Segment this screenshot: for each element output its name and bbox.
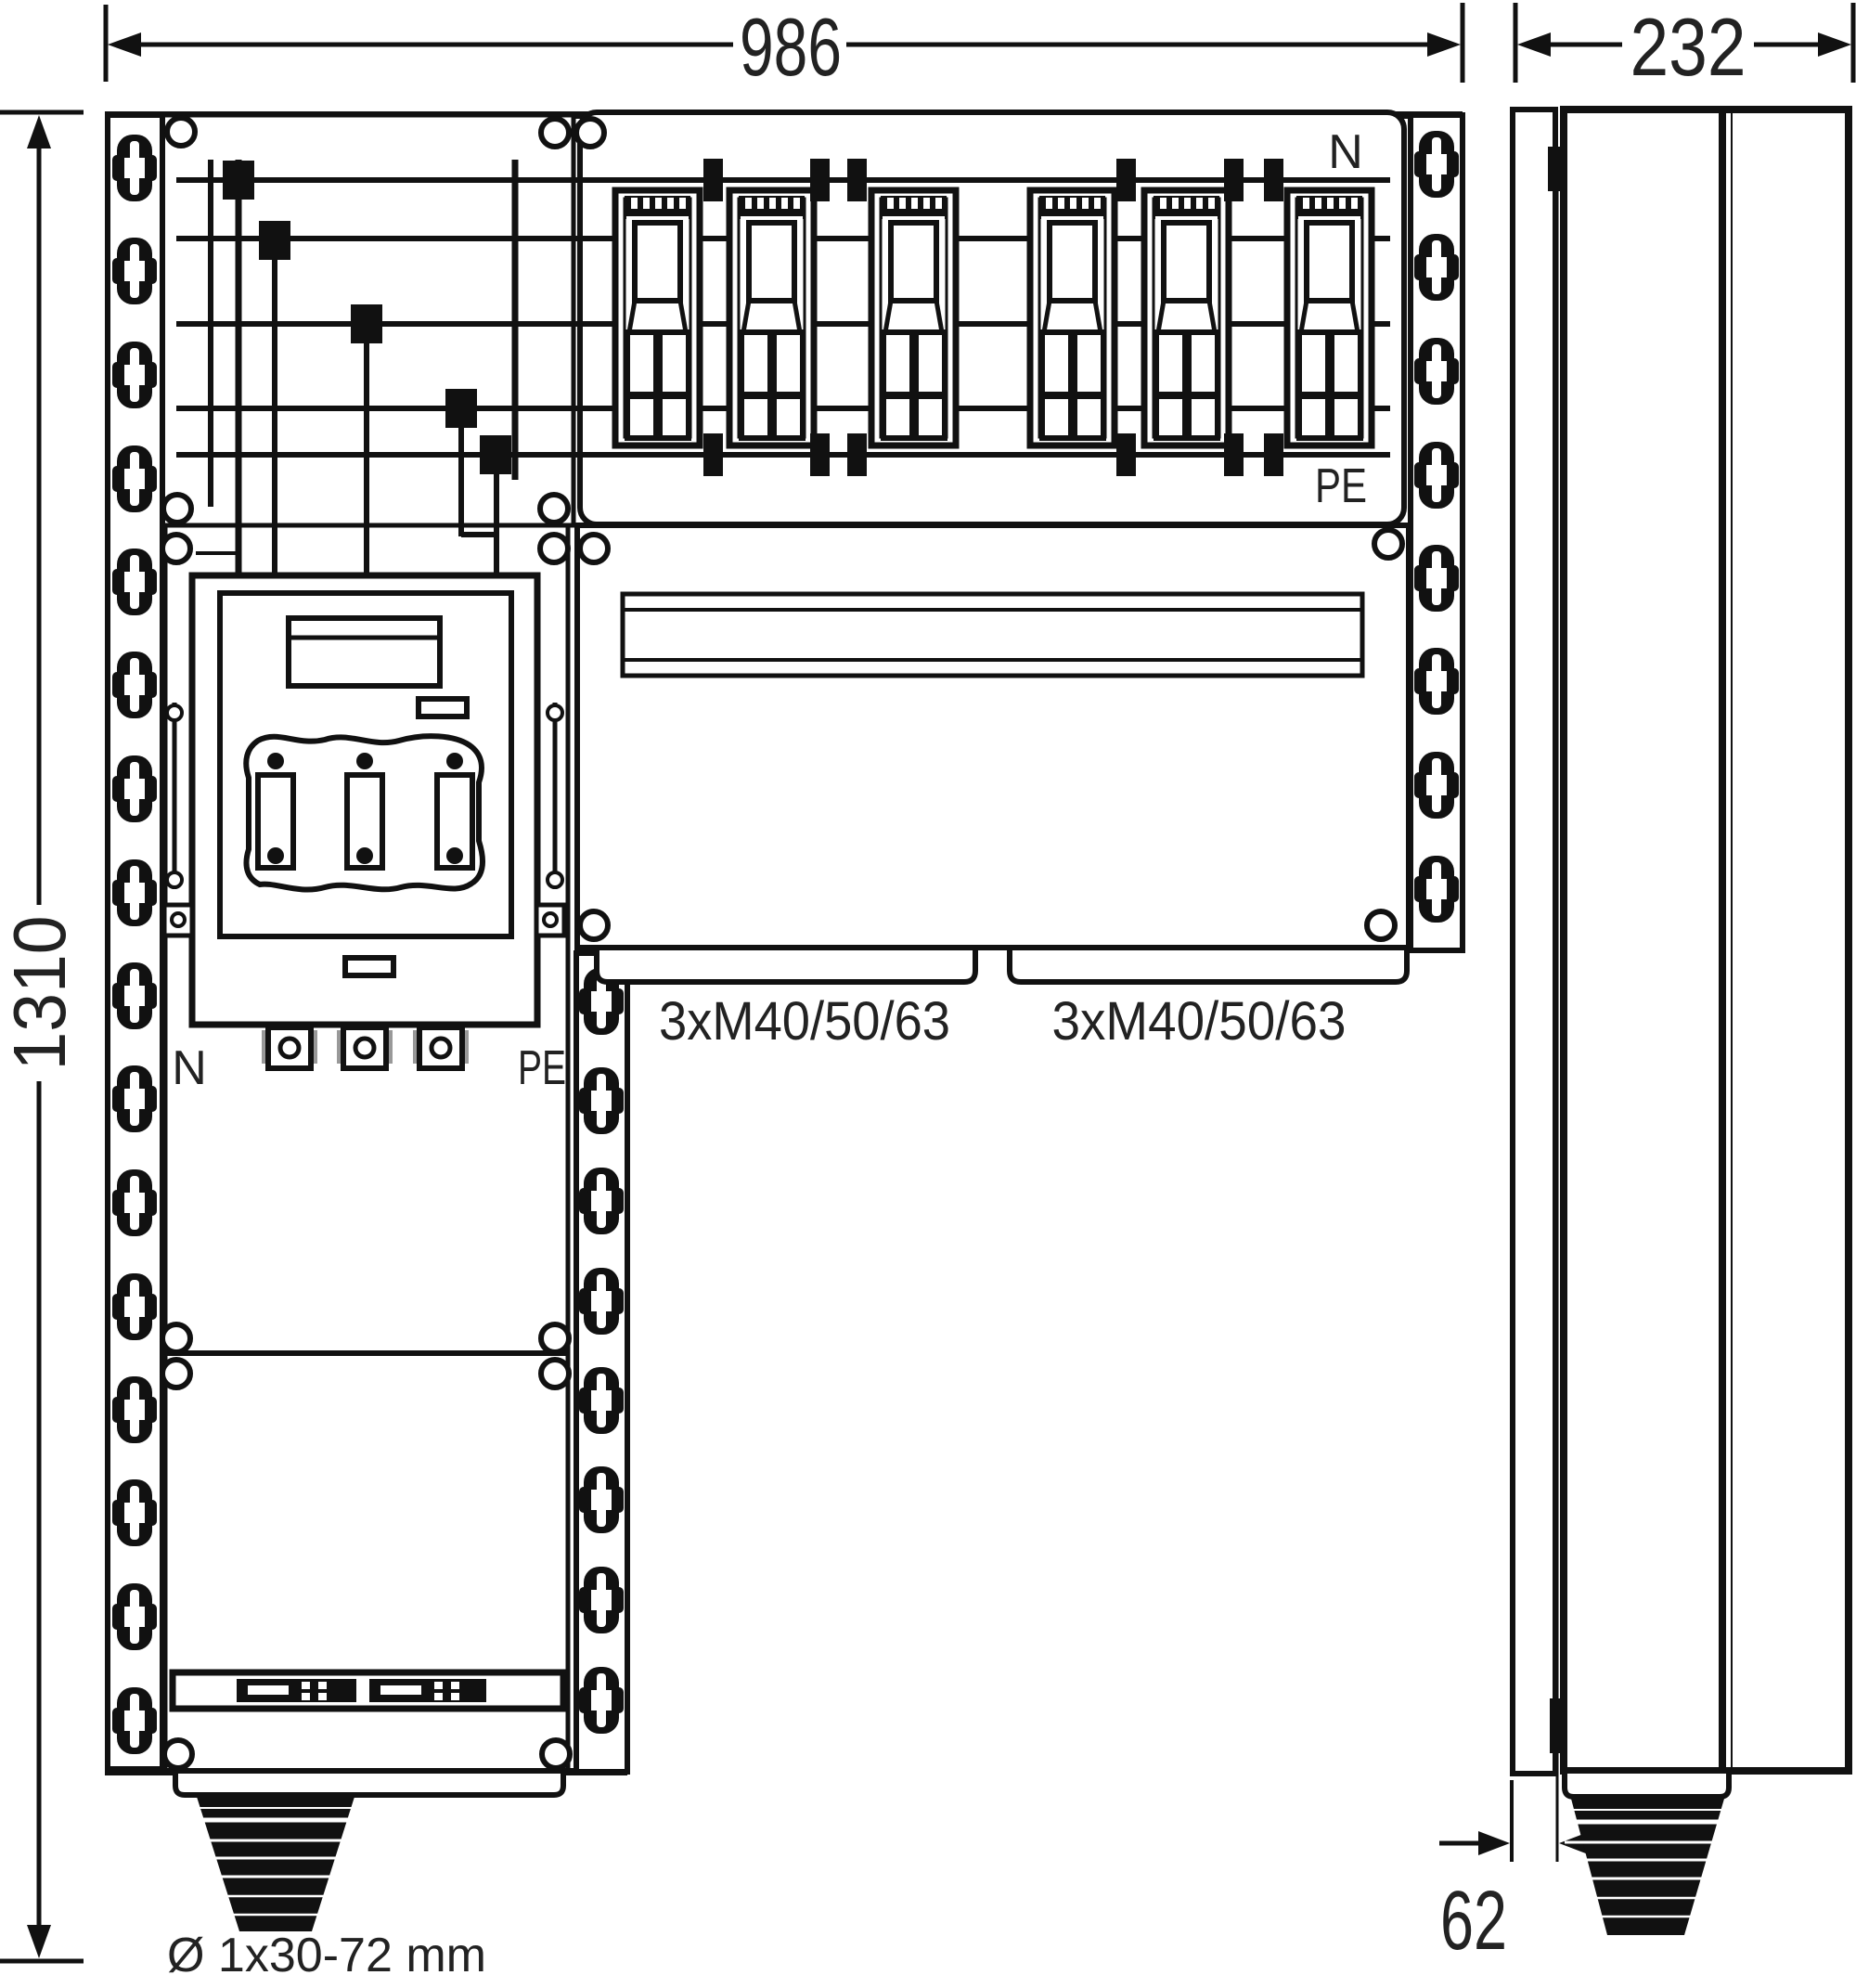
svg-text:986: 986 [740,1,842,93]
svg-text:PE: PE [518,1041,566,1095]
svg-text:PE: PE [1315,459,1367,513]
svg-text:Ø 1x30-72 mm: Ø 1x30-72 mm [167,1929,486,1982]
svg-text:N: N [1328,125,1363,179]
svg-text:1310: 1310 [0,916,81,1071]
svg-text:N: N [172,1041,207,1095]
svg-text:3xM40/50/63: 3xM40/50/63 [1052,991,1347,1052]
svg-text:232: 232 [1630,1,1746,93]
svg-text:3xM40/50/63: 3xM40/50/63 [659,991,950,1052]
svg-text:62: 62 [1440,1875,1507,1968]
